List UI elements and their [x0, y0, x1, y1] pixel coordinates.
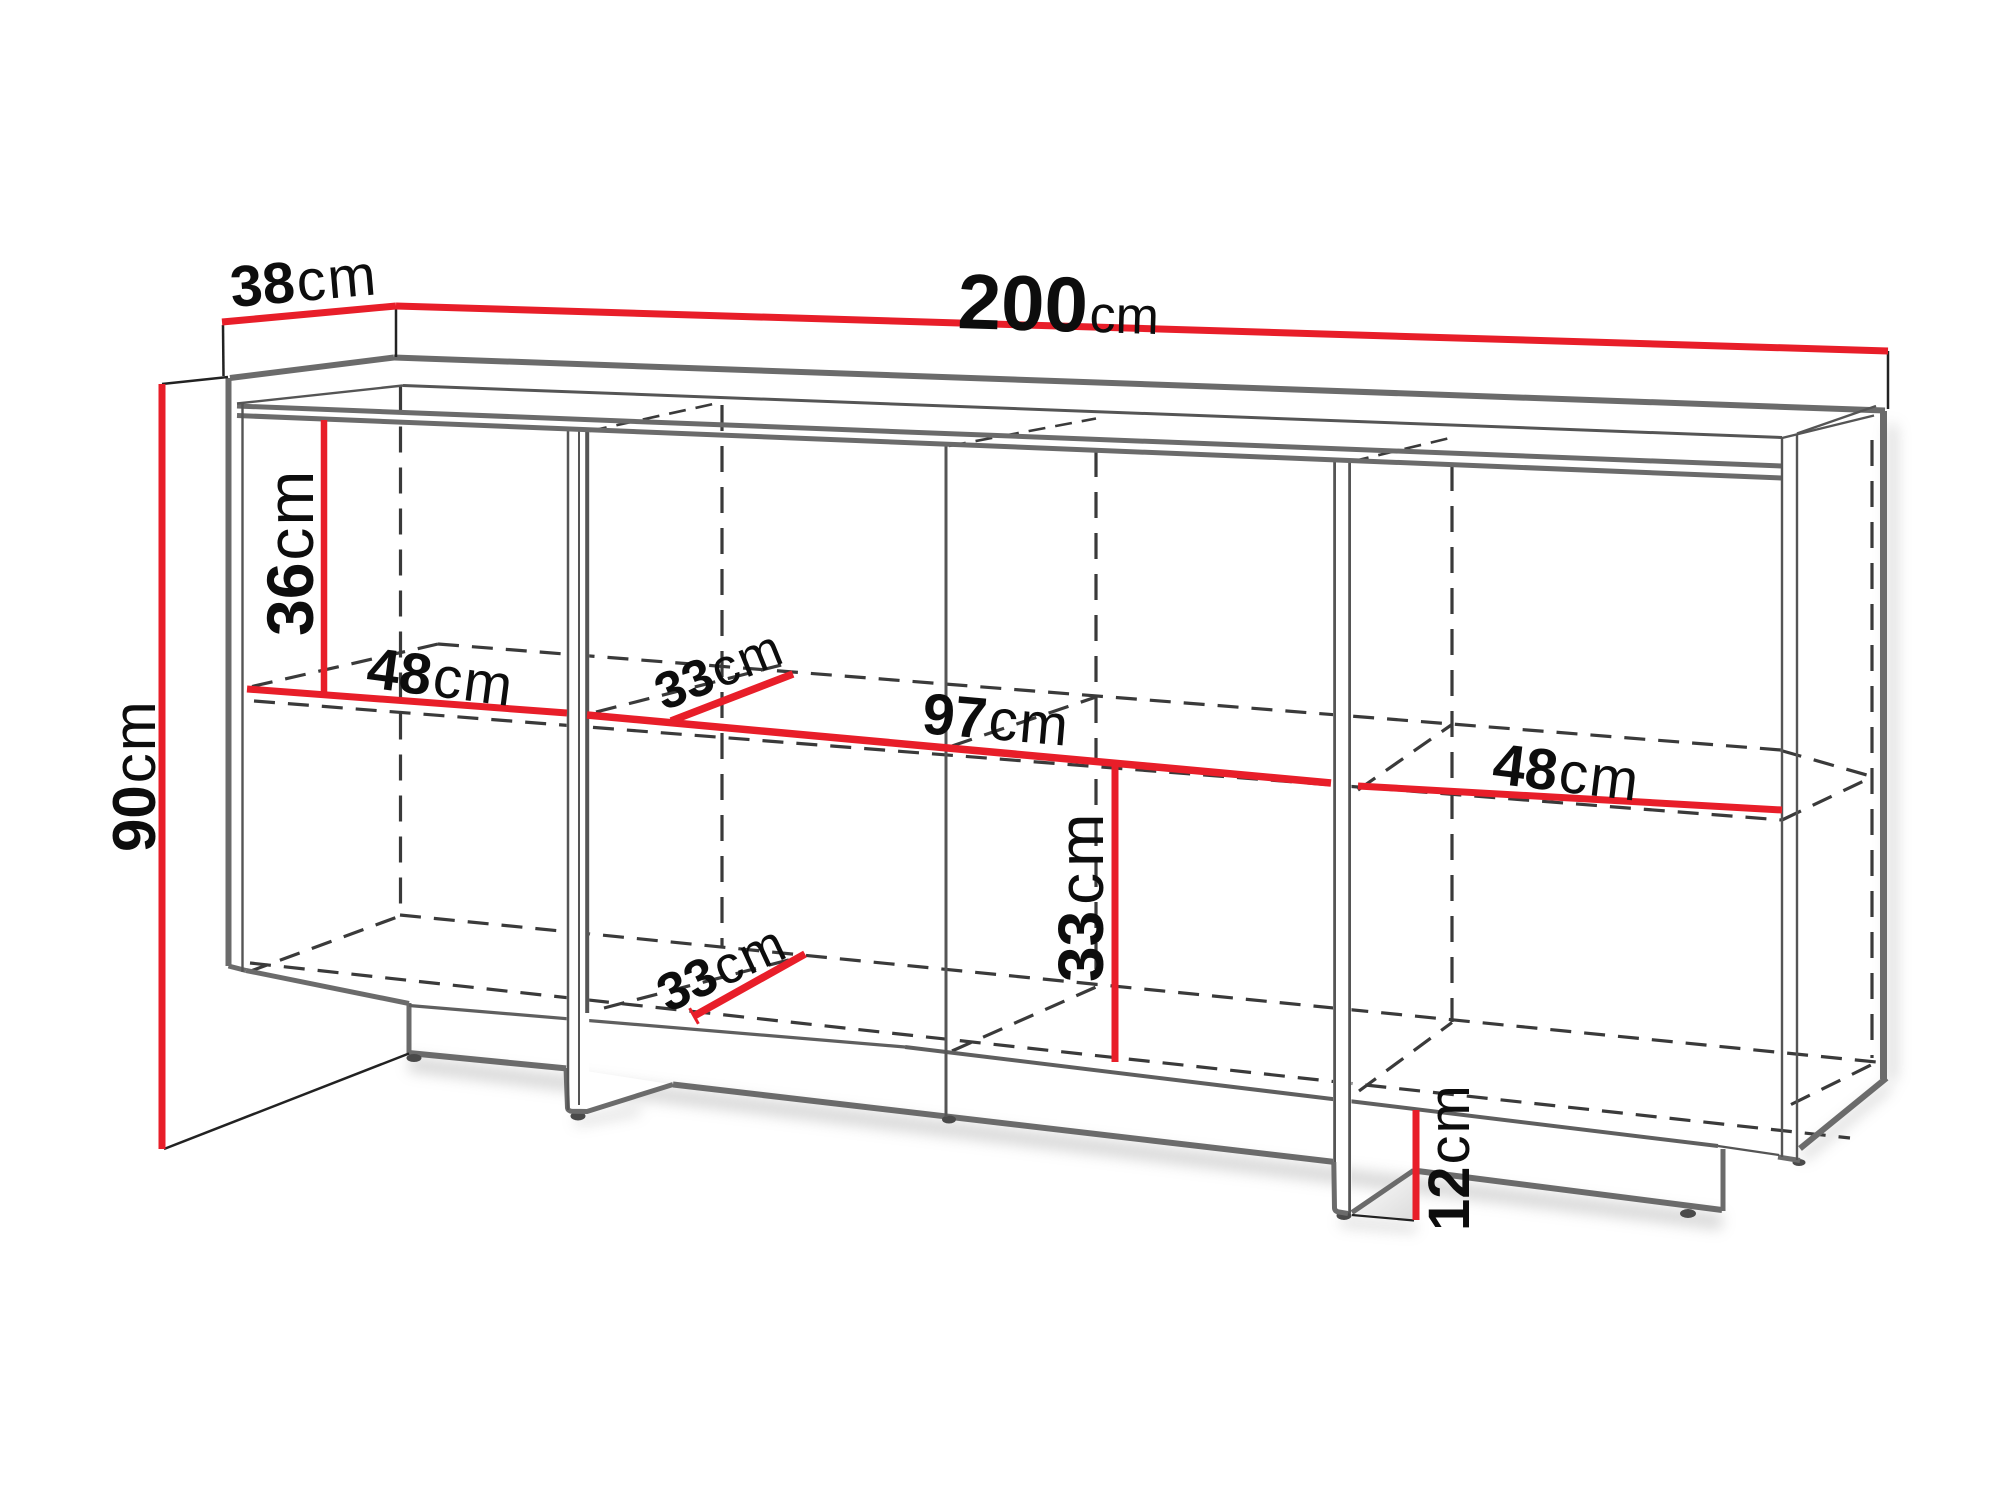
svg-text:97cm: 97cm — [920, 681, 1073, 759]
svg-text:12cm: 12cm — [1417, 1083, 1482, 1231]
svg-text:36cm: 36cm — [253, 469, 327, 636]
svg-text:90cm: 90cm — [101, 699, 168, 852]
svg-text:33cm: 33cm — [1045, 808, 1117, 983]
svg-text:38cm: 38cm — [227, 242, 380, 320]
